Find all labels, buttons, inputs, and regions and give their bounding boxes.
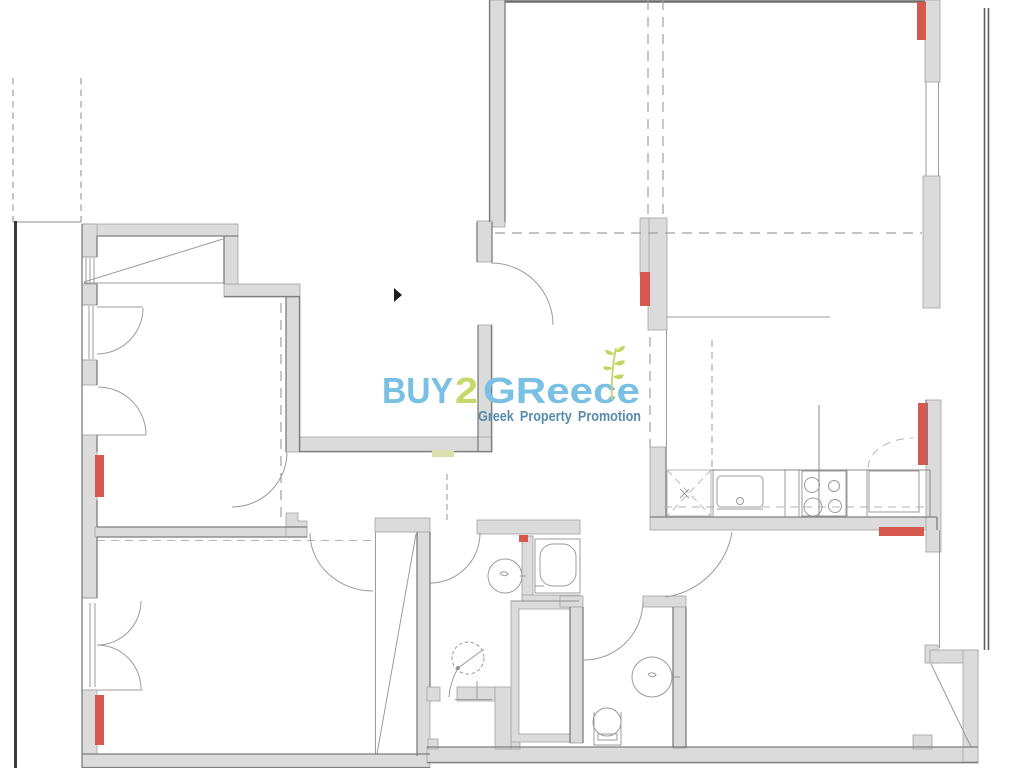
svg-text:BUY: BUY xyxy=(382,370,453,411)
svg-text:2: 2 xyxy=(455,370,478,411)
svg-text:Greek Property Promotion: Greek Property Promotion xyxy=(478,409,641,425)
